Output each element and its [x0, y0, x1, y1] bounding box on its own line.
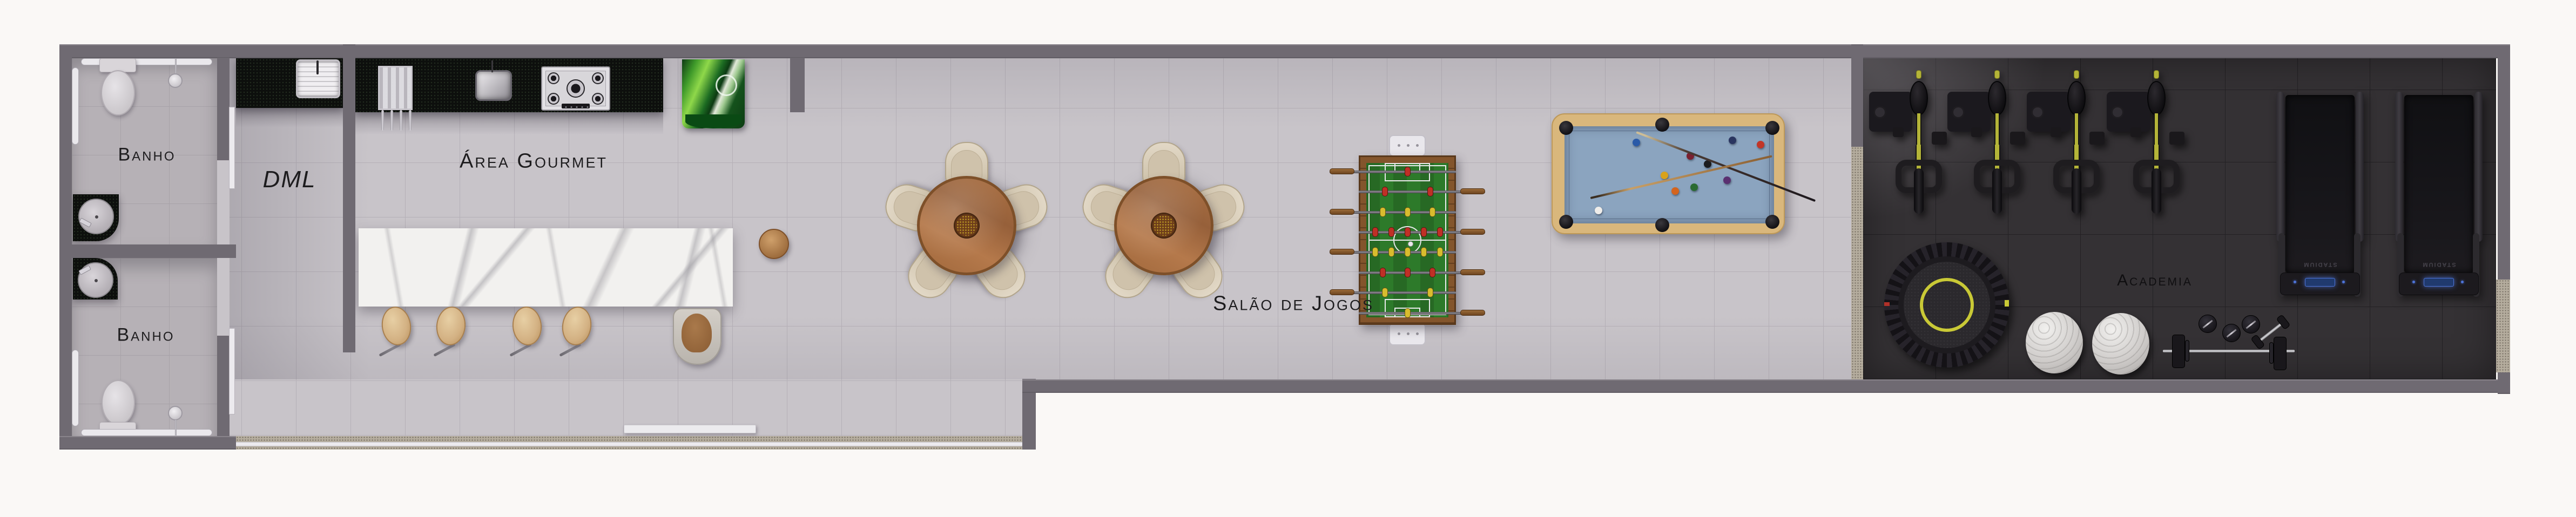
side-table — [759, 229, 789, 259]
bottom-window-band — [236, 436, 1022, 450]
bottom-wall-right — [1022, 379, 2510, 393]
table-centerpiece-plant — [956, 215, 977, 236]
room-label-area-gourmet: Área Gourmet — [460, 150, 608, 173]
island-counter — [359, 228, 733, 307]
treadmill: STADIUM — [2395, 91, 2483, 298]
bathroom-divider-wall — [72, 244, 236, 258]
toilet-bowl-top — [101, 70, 135, 115]
shower-stem-bottom — [175, 420, 177, 436]
beer-fridge — [682, 59, 745, 128]
foosball-goal-cap — [1389, 323, 1426, 345]
spin-bike — [2107, 69, 2200, 216]
table-centerpiece-plant — [1154, 215, 1174, 236]
lounge-chair — [673, 308, 721, 365]
cooktop-knobs — [562, 104, 590, 108]
burner — [548, 93, 559, 105]
pool-cue-ball — [1595, 207, 1602, 214]
toilet-bowl-bottom — [102, 380, 135, 425]
utensil-pin — [390, 110, 393, 131]
weight-plate — [2199, 315, 2217, 333]
exercise-ball — [2026, 312, 2083, 373]
utility-faucet — [316, 60, 319, 74]
pool-ball — [1757, 141, 1764, 148]
barbell-collar-right — [2269, 342, 2274, 364]
pool-pocket — [1765, 121, 1779, 135]
burner — [548, 72, 559, 84]
top-wall — [59, 44, 2510, 58]
bathroom-right-wall-top — [217, 58, 230, 160]
left-wall — [59, 44, 72, 450]
doorway-floor-bottom — [217, 258, 230, 336]
room-label-banho-top: Banho — [118, 145, 176, 166]
trampoline-yellow-ring — [1920, 278, 1974, 332]
shower-head-bottom — [168, 406, 183, 420]
trampoline-tag-yellow — [2005, 300, 2009, 307]
floor-plan: Banho Banho DML Área Gourmet — [0, 0, 2576, 517]
gym-right-window — [2496, 280, 2510, 372]
sink-basin-top — [78, 199, 114, 234]
bathroom-block-bottom-wall — [59, 436, 236, 450]
pool-ball — [1661, 172, 1668, 179]
pool-ball — [1690, 183, 1698, 191]
shower-stem-top — [175, 58, 177, 74]
treadmill: STADIUM — [2276, 91, 2364, 298]
weight-plate — [2222, 324, 2241, 342]
room-label-banho-bottom: Banho — [117, 325, 174, 346]
barbell-plates-right — [2274, 337, 2287, 370]
doorway-floor-top — [217, 160, 230, 244]
window-ledge — [624, 425, 756, 433]
pool-pocket — [1655, 118, 1669, 132]
gym-divider-wall — [1851, 44, 1863, 147]
barbell-plates-left — [2172, 335, 2185, 368]
pool-pocket — [1655, 218, 1669, 232]
foosball-ball — [1408, 241, 1413, 247]
utensil-pin — [409, 110, 412, 131]
grab-bar-left-top — [72, 67, 79, 145]
kitchen-sink — [475, 70, 512, 101]
spin-bike — [2027, 69, 2120, 216]
exercise-ball — [2092, 313, 2149, 375]
grab-bar-bottom — [81, 429, 212, 436]
trampoline-tag-red — [1884, 302, 1890, 306]
burner — [592, 93, 604, 105]
utensil-pin — [400, 110, 402, 131]
treadmill-brand: STADIUM — [2404, 261, 2473, 268]
dml-kitchen-wall — [343, 44, 355, 352]
pool-ball — [1723, 176, 1731, 184]
pool-pocket — [1559, 215, 1573, 229]
pool-ball — [1729, 137, 1736, 144]
pool-pocket — [1559, 121, 1573, 135]
room-label-academia: Academia — [2117, 271, 2193, 290]
kitchen-faucet — [491, 60, 493, 72]
barbell-collar-left — [2185, 340, 2189, 362]
foosball-player — [1405, 167, 1411, 176]
pool-pocket — [1765, 215, 1779, 229]
foosball-table — [1330, 135, 1485, 349]
pool-ball — [1671, 187, 1679, 195]
bathroom-bottom-door — [229, 328, 235, 414]
burner — [592, 72, 604, 84]
bathroom-top-door — [229, 107, 235, 189]
pool-table — [1552, 113, 1785, 234]
gym-divider-knee-wall — [1851, 147, 1863, 379]
grab-bar-left-bottom — [72, 350, 79, 426]
gourmet-stub-wall — [790, 58, 805, 112]
pool-ball — [1633, 139, 1640, 146]
bathroom-right-wall-bottom — [217, 336, 230, 436]
room-label-dml: DML — [263, 166, 316, 193]
utensil-pin — [381, 110, 384, 131]
beer-logo-icon — [716, 74, 737, 96]
bottom-window-frame — [236, 442, 1022, 446]
foosball-goal-cap — [1389, 135, 1426, 157]
burner-center — [567, 79, 585, 98]
room-label-salao-de-jogos: Salão de Jogos — [1213, 292, 1374, 316]
treadmill-brand: STADIUM — [2285, 261, 2355, 268]
shower-head-top — [168, 73, 183, 88]
dish-rack — [378, 66, 413, 110]
